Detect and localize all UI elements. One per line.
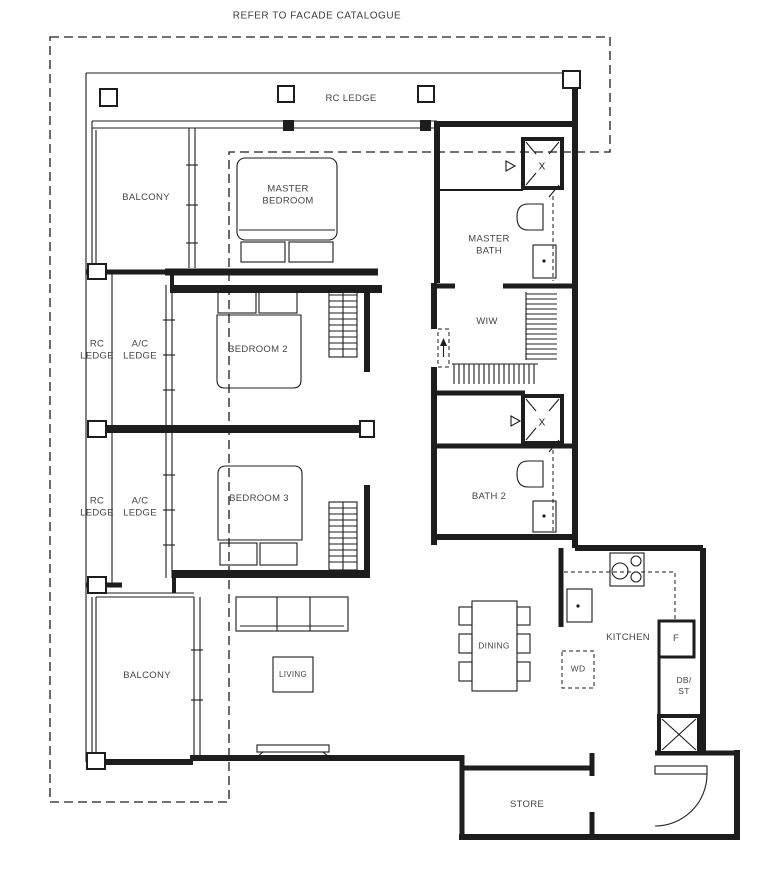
floor-plan-drawing: X X (0, 0, 771, 872)
master-bedroom-bed (237, 158, 337, 262)
label-master-bath: MASTER BATH (468, 234, 509, 259)
label-wiw: WIW (476, 316, 497, 328)
label-dining: DINING (478, 640, 510, 651)
entrance-door (655, 766, 707, 826)
label-living: LIVING (279, 670, 307, 680)
bedroom3-wardrobe (329, 502, 357, 570)
bedroom3-bed (218, 466, 302, 565)
label-balcony-bottom: BALCONY (123, 670, 171, 682)
shaft-middle: X (523, 396, 562, 452)
counter-line (563, 572, 675, 627)
label-washer-dryer: WD (571, 663, 586, 674)
access-panel-marker (438, 329, 449, 367)
label-bedroom3: BEDROOM 3 (229, 493, 289, 505)
wiw-wardrobe (452, 292, 557, 384)
label-ac-ledge-lower: A/C LEDGE (123, 496, 157, 521)
windows-and-ledges (86, 73, 580, 762)
label-rc-ledge-top: RC LEDGE (326, 93, 377, 105)
label-kitchen: KITCHEN (606, 632, 650, 644)
shaft-x-mark: X (539, 418, 546, 429)
shaft-x-mark: X (539, 162, 546, 173)
label-rc-ledge-lower: RC LEDGE (80, 496, 114, 521)
door-swing-arc (655, 774, 707, 826)
shower-head-icon (511, 416, 520, 426)
label-master-bedroom: MASTER BEDROOM (262, 184, 313, 209)
label-balcony-top: BALCONY (122, 192, 170, 204)
facade-note: REFER TO FACADE CATALOGUE (233, 10, 401, 23)
walls-thick (86, 88, 740, 837)
label-fridge: F (673, 633, 679, 645)
floor-plan: X X (0, 0, 771, 872)
label-bath2: BATH 2 (472, 491, 506, 503)
label-store: STORE (510, 799, 544, 811)
shaft-upper: X (523, 139, 562, 197)
living-sofa (236, 597, 348, 631)
shower-head-icon (506, 161, 515, 171)
bedroom2-wardrobe (329, 289, 357, 357)
label-db-st: DB/ ST (676, 675, 691, 697)
label-ac-ledge-upper: A/C LEDGE (123, 339, 157, 364)
shaft-entry (659, 716, 699, 753)
door-leaf (655, 766, 707, 774)
label-rc-ledge-upper: RC LEDGE (80, 339, 114, 364)
label-bedroom2: BEDROOM 2 (228, 344, 288, 356)
columns (87, 71, 580, 769)
